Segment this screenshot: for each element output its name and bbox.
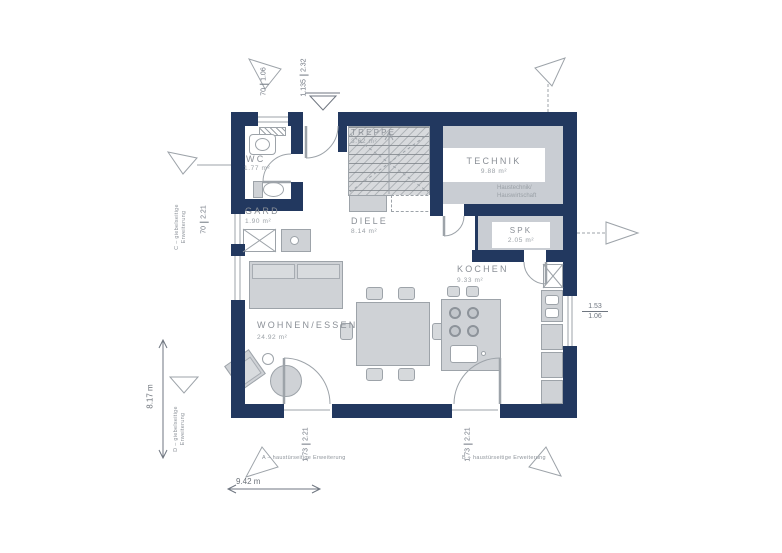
width-dimension-arrowheads	[228, 485, 320, 493]
room-area-technik: 9.88 m²	[481, 168, 507, 175]
dimension-entry-door: 1.1352.32	[300, 58, 309, 96]
annotation-line: D – giebelseitige	[173, 364, 180, 494]
wall-segment	[231, 112, 245, 214]
shaft	[543, 264, 563, 288]
wall-segment	[231, 300, 245, 404]
annotation-bottom-left: A – haustürseitige Erweiterung	[262, 455, 346, 462]
dining-chair	[398, 368, 415, 381]
room-label-spk: SPK	[510, 226, 533, 235]
wardrobe	[243, 229, 276, 252]
toilet	[263, 182, 284, 197]
room-area-kochen: 9.33 m²	[457, 277, 483, 284]
room-area-diele: 8.14 m²	[351, 228, 377, 235]
wall-segment	[563, 112, 577, 296]
dimension-kitchen-window: 1.53 1.06	[582, 303, 608, 320]
sofa-cushion	[297, 264, 340, 279]
bar-stool	[447, 286, 460, 297]
room-label-gard: GARD	[245, 206, 280, 216]
living-window	[235, 256, 240, 300]
coffee-table	[270, 365, 302, 397]
wall-segment	[430, 126, 443, 216]
plan-linework	[0, 0, 782, 553]
kitchen-unit	[541, 380, 563, 404]
cooktop-burner	[449, 307, 461, 319]
room-area-gard: 1.90 m²	[245, 218, 271, 225]
sofa	[249, 261, 343, 309]
annotation-line: Erweiterung	[181, 162, 188, 292]
dining-chair	[398, 287, 415, 300]
room-label-wc: WC	[246, 154, 265, 164]
wall-segment	[472, 250, 524, 262]
island-sink	[450, 345, 478, 363]
entry-door-swing	[306, 126, 338, 158]
extension-arrow-right-icon	[606, 222, 638, 244]
cooktop-burner	[467, 307, 479, 319]
kitchen-sink-bowl	[545, 308, 559, 318]
dimension-value: 70	[201, 226, 208, 234]
wall-segment	[563, 346, 577, 404]
dimension-value: 1.06	[582, 312, 608, 320]
room-labelbox-spk: SPK 2.05 m²	[492, 222, 550, 248]
dimension-value: 1.135	[301, 79, 308, 97]
annotation-line: Erweiterung	[180, 364, 187, 494]
cooktop-burner	[467, 325, 479, 337]
annotation-line: C – giebelseitige	[174, 162, 181, 292]
dimension-value: 70	[261, 88, 268, 96]
entrance-marker-icon	[310, 96, 336, 110]
kitchen-sink-unit	[541, 290, 563, 322]
bar-stool	[466, 286, 479, 297]
dimension-value: 2.21	[465, 427, 472, 441]
kitchen-unit	[541, 352, 563, 378]
wall-segment	[332, 404, 452, 418]
cooktop-burner	[449, 325, 461, 337]
room-label-technik: TECHNIK	[467, 156, 522, 166]
wall-segment	[338, 112, 347, 152]
wc-window	[258, 117, 288, 122]
wall-segment	[231, 244, 245, 256]
room-label-wohnen-essen: WOHNEN/ESSEN	[257, 320, 357, 330]
technik-note-line1: Haustechnik/	[497, 185, 536, 193]
wall-segment	[464, 204, 563, 216]
dimension-wc-window: 701.06	[260, 67, 269, 95]
dimension-value: 2.21	[201, 205, 208, 219]
room-label-diele: DIELE	[351, 216, 388, 226]
room-area-wc: 1.77 m²	[244, 165, 270, 172]
dining-chair	[366, 287, 383, 300]
dimension-value: 1.06	[261, 67, 268, 81]
dimension-value: 2.21	[303, 427, 310, 441]
gard-window	[235, 214, 240, 244]
wall-segment	[546, 250, 563, 262]
dimension-value: 2.32	[301, 58, 308, 72]
overall-depth-label: 8.17 m	[146, 384, 155, 408]
room-area-spk: 2.05 m²	[508, 237, 534, 244]
wall-segment	[291, 126, 303, 154]
wall-segment	[475, 216, 478, 250]
floor-plan: WC 1.77 m² GARD 1.90 m² TREPPE 3.62 m² D…	[0, 0, 782, 553]
wall-segment	[500, 404, 577, 418]
wall-segment	[347, 112, 577, 126]
room-label-treppe: TREPPE	[351, 128, 396, 137]
room-area-wohnen-essen: 24.92 m²	[257, 334, 287, 341]
sideboard	[349, 195, 387, 212]
room-area-treppe: 3.62 m²	[351, 138, 377, 145]
wall-segment	[231, 404, 284, 418]
annotation-left-top: C – giebelseitige Erweiterung	[174, 162, 188, 292]
toilet-tank	[253, 181, 263, 198]
extension-arrow-bottom-left-icon	[246, 447, 278, 477]
bench	[281, 229, 311, 252]
technik-door-swing	[444, 216, 464, 236]
kitchen-unit	[541, 324, 563, 350]
depth-dimension-arrowheads	[159, 340, 167, 458]
dimension-value: 1.53	[582, 303, 608, 312]
extension-arrow-top-right-icon	[535, 58, 565, 86]
dimension-gard-window: 702.21	[200, 205, 209, 233]
wall-segment	[288, 112, 303, 126]
sofa-cushion	[252, 264, 295, 279]
dining-table	[356, 302, 430, 366]
room-label-kochen: KOCHEN	[457, 264, 509, 274]
dining-chair	[366, 368, 383, 381]
washbasin	[249, 134, 276, 155]
technik-note: Haustechnik/ Hauswirtschaft	[497, 185, 536, 200]
kitchen-sink-bowl	[545, 295, 559, 305]
technik-note-line2: Hauswirtschaft	[497, 193, 536, 201]
room-labelbox-technik: TECHNIK 9.88 m²	[443, 148, 545, 182]
island-tap	[481, 351, 486, 356]
annotation-bottom-right: B – haustürseitige Erweiterung	[462, 455, 546, 462]
annotation-left-bottom: D – giebelseitige Erweiterung	[173, 364, 187, 494]
overall-width-label: 9.42 m	[236, 477, 260, 486]
plant	[262, 353, 274, 365]
kitchen-window	[568, 296, 572, 346]
bench-knob	[290, 236, 299, 245]
washbasin-bowl	[255, 138, 270, 151]
